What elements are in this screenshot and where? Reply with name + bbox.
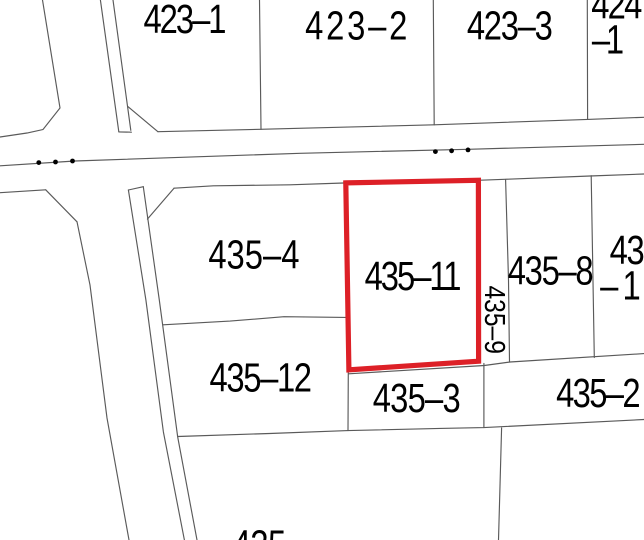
svg-text:–1: –1 xyxy=(592,16,623,62)
svg-text:435–3: 435–3 xyxy=(373,375,460,421)
svg-text:423–3: 423–3 xyxy=(467,2,552,48)
svg-text:423–1: 423–1 xyxy=(143,0,225,42)
svg-text:435: 435 xyxy=(233,521,286,540)
svg-text:435–4: 435–4 xyxy=(208,231,299,277)
svg-text:423–2: 423–2 xyxy=(305,2,410,48)
svg-text:–1: –1 xyxy=(600,262,644,308)
svg-text:435–8: 435–8 xyxy=(508,247,593,293)
svg-text:435–12: 435–12 xyxy=(210,354,311,400)
svg-text:435–11: 435–11 xyxy=(365,252,460,298)
svg-text:435–9: 435–9 xyxy=(479,285,511,354)
svg-text:435–2: 435–2 xyxy=(556,370,639,416)
